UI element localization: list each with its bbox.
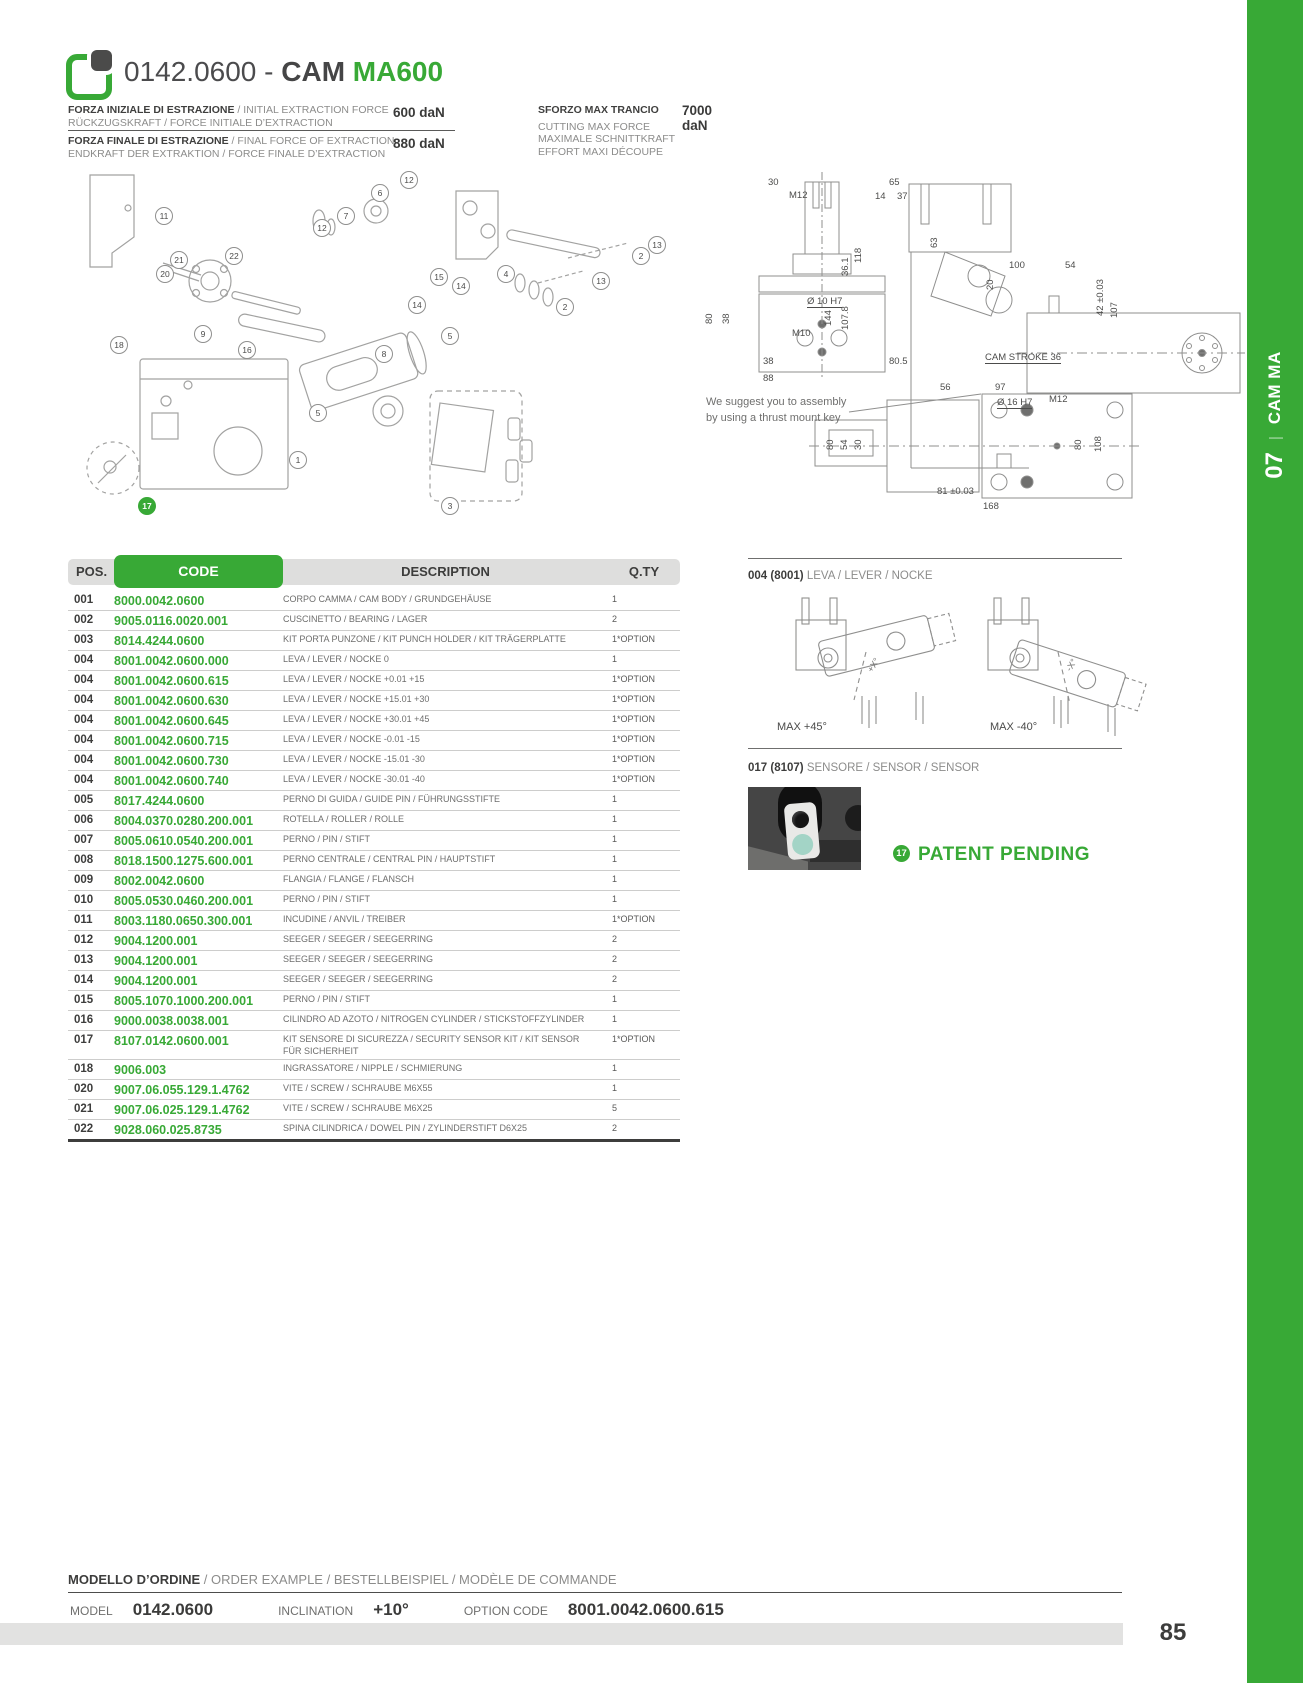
code-cell: 9006.003 (114, 1063, 283, 1077)
code-cell: 8014.4244.0600 (114, 634, 283, 648)
qty-cell: 1*OPTION (608, 734, 680, 744)
qty-cell: 1*OPTION (608, 774, 680, 784)
description-cell: LEVA / LEVER / NOCKE -0.01 -15 (283, 734, 608, 746)
dimension-label: 36.1 (840, 258, 851, 277)
chapter-band: 07 | CAM MA (1247, 0, 1303, 1683)
order-title-bold: MODELLO D’ORDINE (68, 1572, 200, 1587)
description-cell: SPINA CILINDRICA / DOWEL PIN / ZYLINDERS… (283, 1123, 608, 1135)
pos-cell: 022 (68, 1123, 114, 1135)
lever-drawing-minus40 (958, 592, 1158, 740)
dimension-label: 81 ±0.03 (937, 486, 974, 497)
qty-cell: 1*OPTION (608, 1034, 680, 1044)
chapter-number: 07 (1261, 452, 1289, 479)
callout-balloon: 14 (408, 296, 426, 314)
qty-cell: 1 (608, 854, 680, 864)
table-row: 0108005.0530.0460.200.001PERNO / PIN / S… (68, 891, 680, 911)
sensor-body (784, 802, 821, 861)
dimension-label: 100 (1009, 260, 1025, 271)
table-row: 0048001.0042.0600.630LEVA / LEVER / NOCK… (68, 691, 680, 711)
qty-cell: 1 (608, 594, 680, 604)
dimension-label: 54 (839, 439, 850, 450)
pos-cell: 016 (68, 1014, 114, 1026)
spec-label-de: MAXIMALE SCHNITTKRAFT (538, 133, 675, 146)
chapter-group-label: CAM MA (1265, 351, 1285, 424)
qty-cell: 1 (608, 654, 680, 664)
callout-balloon: 2 (556, 298, 574, 316)
col-header-description: DESCRIPTION (283, 564, 608, 579)
spec-divider (68, 130, 455, 131)
description-cell: PERNO / PIN / STIFT (283, 894, 608, 906)
table-row: 0068004.0370.0280.200.001ROTELLA / ROLLE… (68, 811, 680, 831)
code-cell: 8003.1180.0650.300.001 (114, 914, 283, 928)
spec-label-en: / FINAL FORCE OF EXTRACTION (229, 135, 395, 147)
callout-balloon: 17 (138, 497, 156, 515)
table-row: 0048001.0042.0600.000LEVA / LEVER / NOCK… (68, 651, 680, 671)
dimension-labels: 30M128038Ø 10 H7M1038886514376311836.114… (697, 168, 1247, 520)
qty-cell: 1 (608, 894, 680, 904)
dimension-label: 118 (853, 248, 864, 263)
dimension-label: 97 (995, 382, 1006, 393)
dimension-label: CAM STROKE 36 (985, 352, 1061, 364)
table-row: 0048001.0042.0600.740LEVA / LEVER / NOCK… (68, 771, 680, 791)
code-cell: 8002.0042.0600 (114, 874, 283, 888)
qty-cell: 2 (608, 1123, 680, 1133)
callout-balloon: 22 (225, 247, 243, 265)
dimension-label: 107.8 (840, 306, 851, 330)
description-cell: LEVA / LEVER / NOCKE -30.01 -40 (283, 774, 608, 786)
qty-cell: 2 (608, 974, 680, 984)
sensor-led (791, 833, 814, 856)
qty-cell: 2 (608, 934, 680, 944)
product-code: 0142.0600 - (124, 56, 273, 87)
callout-balloon: 16 (238, 341, 256, 359)
parts-table: POS. CODE DESCRIPTION Q.TY 0018000.0042.… (68, 555, 680, 1142)
table-row: 0209007.06.055.129.1.4762VITE / SCREW / … (68, 1080, 680, 1100)
table-row: 0129004.1200.001SEEGER / SEEGER / SEEGER… (68, 931, 680, 951)
callout-balloon: 20 (156, 265, 174, 283)
order-example-title: MODELLO D’ORDINE / ORDER EXAMPLE / BESTE… (68, 1572, 617, 1587)
lever-max-right-label: MAX -40° (990, 721, 1037, 733)
code-cell: 8001.0042.0600.615 (114, 674, 283, 688)
spec-value-max: 7000 daN (682, 103, 712, 133)
qty-cell: 2 (608, 614, 680, 624)
spec-initial-force: FORZA INIZIALE DI ESTRAZIONE / INITIAL E… (68, 104, 389, 129)
dimension-label: 30 (768, 177, 779, 188)
code-cell: 8001.0042.0600.740 (114, 774, 283, 788)
description-cell: LEVA / LEVER / NOCKE +0.01 +15 (283, 674, 608, 686)
pos-cell: 015 (68, 994, 114, 1006)
callout-balloon: 12 (313, 219, 331, 237)
pos-cell: 005 (68, 794, 114, 806)
callout-balloon: 1 (289, 451, 307, 469)
description-cell: CORPO CAMMA / CAM BODY / GRUNDGEHÄUSE (283, 594, 608, 606)
order-inclination-label: INCLINATION (278, 1604, 353, 1618)
qty-cell: 1 (608, 794, 680, 804)
sensor-section-pos: 017 (8107) (748, 762, 804, 774)
qty-cell: 1*OPTION (608, 914, 680, 924)
code-cell: 8005.0530.0460.200.001 (114, 894, 283, 908)
description-cell: PERNO / PIN / STIFT (283, 994, 608, 1006)
table-row: 0058017.4244.0600PERNO DI GUIDA / GUIDE … (68, 791, 680, 811)
qty-cell: 1 (608, 1063, 680, 1073)
lever-max-left-label: MAX +45° (777, 721, 827, 733)
sensor-lens (791, 810, 809, 828)
qty-cell: 1*OPTION (608, 674, 680, 684)
callout-balloon: 13 (592, 272, 610, 290)
description-cell: LEVA / LEVER / NOCKE -15.01 -30 (283, 754, 608, 766)
dimension-label: 14 (875, 191, 886, 202)
pos-cell: 004 (68, 654, 114, 666)
dimension-label: 80 (1073, 439, 1084, 450)
code-cell: 8001.0042.0600.000 (114, 654, 283, 668)
pos-cell: 002 (68, 614, 114, 626)
dimension-label: 80 (825, 439, 836, 450)
table-row: 0178107.0142.0600.001KIT SENSORE DI SICU… (68, 1031, 680, 1060)
table-row: 0158005.1070.1000.200.001PERNO / PIN / S… (68, 991, 680, 1011)
description-cell: INCUDINE / ANVIL / TREIBER (283, 914, 608, 926)
spec-max-cutting-force: SFORZO MAX TRANCIO CUTTING MAX FORCE MAX… (538, 104, 675, 158)
callout-balloon: 11 (155, 207, 173, 225)
code-cell: 9005.0116.0020.001 (114, 614, 283, 628)
order-fields: MODEL 0142.0600 INCLINATION +10° OPTION … (70, 1600, 724, 1620)
order-model-label: MODEL (70, 1604, 113, 1618)
table-row: 0048001.0042.0600.615LEVA / LEVER / NOCK… (68, 671, 680, 691)
callout-balloon: 7 (337, 207, 355, 225)
callout-balloon: 8 (375, 345, 393, 363)
lever-section-desc: LEVA / LEVER / NOCKE (804, 570, 933, 582)
pos-cell: 004 (68, 754, 114, 766)
code-cell: 8000.0042.0600 (114, 594, 283, 608)
parts-table-header: POS. CODE DESCRIPTION Q.TY (68, 555, 680, 591)
exploded-balloons: 116127122221209161885511734151414132132 (68, 163, 693, 518)
lever-section-title: 004 (8001) LEVA / LEVER / NOCKE (748, 570, 933, 582)
qty-cell: 5 (608, 1103, 680, 1113)
dimension-label: 30 (853, 439, 864, 450)
pos-cell: 018 (68, 1063, 114, 1075)
table-row: 0048001.0042.0600.730LEVA / LEVER / NOCK… (68, 751, 680, 771)
qty-cell: 1*OPTION (608, 754, 680, 764)
spec-final-force: FORZA FINALE DI ESTRAZIONE / FINAL FORCE… (68, 135, 394, 160)
code-cell: 9004.1200.001 (114, 954, 283, 968)
pos-cell: 014 (68, 974, 114, 986)
callout-balloon: 14 (452, 277, 470, 295)
spec-label-en: CUTTING MAX FORCE (538, 121, 675, 134)
qty-cell: 1 (608, 814, 680, 824)
pos-cell: 017 (68, 1034, 114, 1046)
dimension-drawing: 30M128038Ø 10 H7M1038886514376311836.114… (697, 168, 1247, 520)
description-cell: CUSCINETTO / BEARING / LAGER (283, 614, 608, 626)
page-title: 0142.0600 - CAM MA600 (124, 56, 443, 88)
logo-inner-square (91, 50, 112, 71)
dimension-label: 168 (983, 501, 999, 512)
description-cell: ROTELLA / ROLLER / ROLLE (283, 814, 608, 826)
dimension-label: Ø 10 H7 (807, 296, 842, 308)
table-row: 0169000.0038.0038.001CILINDRO AD AZOTO /… (68, 1011, 680, 1031)
description-cell: LEVA / LEVER / NOCKE +30.01 +45 (283, 714, 608, 726)
description-cell: PERNO CENTRALE / CENTRAL PIN / HAUPTSTIF… (283, 854, 608, 866)
chapter-band-text: 07 | CAM MA (1261, 351, 1289, 479)
table-row: 0149004.1200.001SEEGER / SEEGER / SEEGER… (68, 971, 680, 991)
catalog-page: 07 | CAM MA 0142.0600 - CAM MA600 FORZA … (0, 0, 1303, 1683)
callout-balloon: 4 (497, 265, 515, 283)
code-cell: 9028.060.025.8735 (114, 1123, 283, 1137)
dimension-label: 80.5 (889, 356, 908, 367)
dimension-label: M12 (1049, 394, 1067, 405)
pos-cell: 004 (68, 734, 114, 746)
spec-label: FORZA INIZIALE DI ESTRAZIONE (68, 104, 234, 116)
description-cell: SEEGER / SEEGER / SEEGERRING (283, 974, 608, 986)
spec-label-fr: EFFORT MAXI DÉCOUPE (538, 146, 675, 159)
dimension-label: 37 (897, 191, 908, 202)
code-cell: 9007.06.055.129.1.4762 (114, 1083, 283, 1097)
qty-cell: 1 (608, 1083, 680, 1093)
callout-balloon: 21 (170, 251, 188, 269)
pos-cell: 007 (68, 834, 114, 846)
callout-balloon: 6 (371, 184, 389, 202)
pos-cell: 020 (68, 1083, 114, 1095)
dimension-label: M10 (792, 328, 810, 339)
description-cell: PERNO / PIN / STIFT (283, 834, 608, 846)
description-cell: LEVA / LEVER / NOCKE 0 (283, 654, 608, 666)
qty-cell: 1*OPTION (608, 714, 680, 724)
table-row: 0219007.06.025.129.1.4762VITE / SCREW / … (68, 1100, 680, 1120)
dimension-label: 80 (704, 313, 715, 324)
qty-cell: 1 (608, 1014, 680, 1024)
spec-value-initial: 600 daN (393, 105, 445, 120)
pos-cell: 004 (68, 694, 114, 706)
description-cell: SEEGER / SEEGER / SEEGERRING (283, 954, 608, 966)
code-cell: 8001.0042.0600.715 (114, 734, 283, 748)
qty-cell: 1*OPTION (608, 694, 680, 704)
sensor-photo (748, 787, 861, 870)
table-row: 0038014.4244.0600KIT PORTA PUNZONE / KIT… (68, 631, 680, 651)
description-cell: LEVA / LEVER / NOCKE +15.01 +30 (283, 694, 608, 706)
callout-balloon: 5 (441, 327, 459, 345)
pos-cell: 012 (68, 934, 114, 946)
callout-balloon: 12 (400, 171, 418, 189)
code-cell: 8001.0042.0600.630 (114, 694, 283, 708)
callout-balloon: 5 (309, 404, 327, 422)
spec-label-de-fr: ENDKRAFT DER EXTRAKTION / FORCE FINALE D… (68, 148, 394, 161)
order-option-code-value: 8001.0042.0600.615 (568, 1600, 724, 1620)
code-cell: 8017.4244.0600 (114, 794, 283, 808)
footer-bar (0, 1623, 1123, 1645)
photo-side-hole (845, 805, 861, 831)
qty-cell: 1 (608, 994, 680, 1004)
description-cell: KIT SENSORE DI SICUREZZA / SECURITY SENS… (283, 1034, 608, 1057)
section-divider (748, 748, 1122, 749)
description-cell: SEEGER / SEEGER / SEEGERRING (283, 934, 608, 946)
parts-table-body: 0018000.0042.0600CORPO CAMMA / CAM BODY … (68, 591, 680, 1139)
pos-cell: 009 (68, 874, 114, 886)
table-row: 0098002.0042.0600FLANGIA / FLANGE / FLAN… (68, 871, 680, 891)
table-row: 0029005.0116.0020.001CUSCINETTO / BEARIN… (68, 611, 680, 631)
code-cell: 8107.0142.0600.001 (114, 1034, 283, 1048)
description-cell: CILINDRO AD AZOTO / NITROGEN CYLINDER / … (283, 1014, 608, 1026)
brand-logo-icon (66, 52, 114, 100)
col-header-pos: POS. (76, 564, 107, 579)
order-inclination-value: +10° (373, 1600, 409, 1620)
pos-cell: 004 (68, 774, 114, 786)
order-title-rest: / ORDER EXAMPLE / BESTELLBEISPIEL / MODÈ… (200, 1572, 616, 1587)
pos-cell: 001 (68, 594, 114, 606)
dimension-label: 54 (1065, 260, 1076, 271)
callout-balloon: 9 (194, 325, 212, 343)
patent-pending-label: PATENT PENDING (918, 844, 1090, 866)
code-cell: 8001.0042.0600.645 (114, 714, 283, 728)
dimension-label: M12 (789, 190, 807, 201)
dimension-label: 88 (763, 373, 774, 384)
code-cell: 9007.06.025.129.1.4762 (114, 1103, 283, 1117)
callout-balloon: 2 (632, 247, 650, 265)
qty-cell: 1 (608, 834, 680, 844)
dimension-label: 65 (889, 177, 900, 188)
section-divider (748, 558, 1122, 559)
order-model-value: 0142.0600 (133, 1600, 213, 1620)
lever-section-pos: 004 (8001) (748, 570, 804, 582)
dimension-label: 38 (763, 356, 774, 367)
order-divider (68, 1592, 1122, 1593)
spec-label-en: / INITIAL EXTRACTION FORCE (234, 104, 388, 116)
pos-cell: 021 (68, 1103, 114, 1115)
code-cell: 8004.0370.0280.200.001 (114, 814, 283, 828)
table-row: 0088018.1500.1275.600.001PERNO CENTRALE … (68, 851, 680, 871)
pos-cell: 008 (68, 854, 114, 866)
qty-cell: 1*OPTION (608, 634, 680, 644)
dimension-label: 38 (721, 313, 732, 324)
sensor-section-desc: SENSORE / SENSOR / SENSOR (804, 762, 980, 774)
code-cell: 9004.1200.001 (114, 934, 283, 948)
table-row: 0048001.0042.0600.645LEVA / LEVER / NOCK… (68, 711, 680, 731)
page-number: 85 (1143, 1619, 1203, 1647)
description-cell: FLANGIA / FLANGE / FLANSCH (283, 874, 608, 886)
pos-cell: 011 (68, 914, 114, 926)
order-option-code-label: OPTION CODE (464, 1604, 548, 1618)
table-row: 0048001.0042.0600.715LEVA / LEVER / NOCK… (68, 731, 680, 751)
spec-value-final: 880 daN (393, 136, 445, 151)
code-cell: 9000.0038.0038.001 (114, 1014, 283, 1028)
dimension-label: 144 (823, 310, 834, 326)
table-row: 0229028.060.025.8735SPINA CILINDRICA / D… (68, 1120, 680, 1139)
spec-label-de-fr: RÜCKZUGSKRAFT / FORCE INITIALE D’EXTRACT… (68, 117, 389, 130)
spec-label: SFORZO MAX TRANCIO (538, 104, 675, 117)
code-cell: 8018.1500.1275.600.001 (114, 854, 283, 868)
table-row: 0189006.003INGRASSATORE / NIPPLE / SCHMI… (68, 1060, 680, 1080)
sensor-section-title: 017 (8107) SENSORE / SENSOR / SENSOR (748, 762, 979, 774)
dimension-label: 63 (929, 237, 940, 248)
pos-cell: 003 (68, 634, 114, 646)
description-cell: PERNO DI GUIDA / GUIDE PIN / FÜHRUNGSSTI… (283, 794, 608, 806)
table-row: 0118003.1180.0650.300.001INCUDINE / ANVI… (68, 911, 680, 931)
col-header-qty: Q.TY (608, 564, 680, 579)
description-cell: VITE / SCREW / SCHRAUBE M6X55 (283, 1083, 608, 1095)
qty-cell: 1 (608, 874, 680, 884)
code-cell: 8005.1070.1000.200.001 (114, 994, 283, 1008)
code-cell: 8001.0042.0600.730 (114, 754, 283, 768)
code-cell: 9004.1200.001 (114, 974, 283, 988)
callout-balloon: 18 (110, 336, 128, 354)
assembly-note-line2: by using a thrust mount key (706, 412, 841, 424)
chapter-separator: | (1267, 436, 1284, 440)
patent-badge-17: 17 (893, 845, 910, 862)
callout-balloon: 15 (430, 268, 448, 286)
table-row: 0078005.0610.0540.200.001PERNO / PIN / S… (68, 831, 680, 851)
callout-balloon: 3 (441, 497, 459, 515)
callout-balloon: 13 (648, 236, 666, 254)
pos-cell: 004 (68, 674, 114, 686)
table-row: 0018000.0042.0600CORPO CAMMA / CAM BODY … (68, 591, 680, 611)
dimension-label: Ø 16 H7 (997, 397, 1032, 409)
product-model: MA600 (353, 56, 443, 87)
description-cell: KIT PORTA PUNZONE / KIT PUNCH HOLDER / K… (283, 634, 608, 646)
dimension-label: 20 (985, 279, 996, 290)
table-row: 0139004.1200.001SEEGER / SEEGER / SEEGER… (68, 951, 680, 971)
dimension-label: 108 (1093, 436, 1104, 452)
description-cell: INGRASSATORE / NIPPLE / SCHMIERUNG (283, 1063, 608, 1075)
dimension-label: 42 ±0.03 (1095, 279, 1106, 316)
assembly-note-line1: We suggest you to assembly (706, 396, 846, 408)
dimension-label: 56 (940, 382, 951, 393)
exploded-diagram: 116127122221209161885511734151414132132 (68, 163, 693, 518)
pos-cell: 013 (68, 954, 114, 966)
qty-cell: 2 (608, 954, 680, 964)
product-family: CAM (281, 56, 345, 87)
description-cell: VITE / SCREW / SCHRAUBE M6X25 (283, 1103, 608, 1115)
pos-cell: 010 (68, 894, 114, 906)
pos-cell: 004 (68, 714, 114, 726)
dimension-label: 107 (1109, 302, 1120, 318)
pos-cell: 006 (68, 814, 114, 826)
code-cell: 8005.0610.0540.200.001 (114, 834, 283, 848)
spec-label: FORZA FINALE DI ESTRAZIONE (68, 135, 229, 147)
col-header-code: CODE (114, 555, 283, 588)
